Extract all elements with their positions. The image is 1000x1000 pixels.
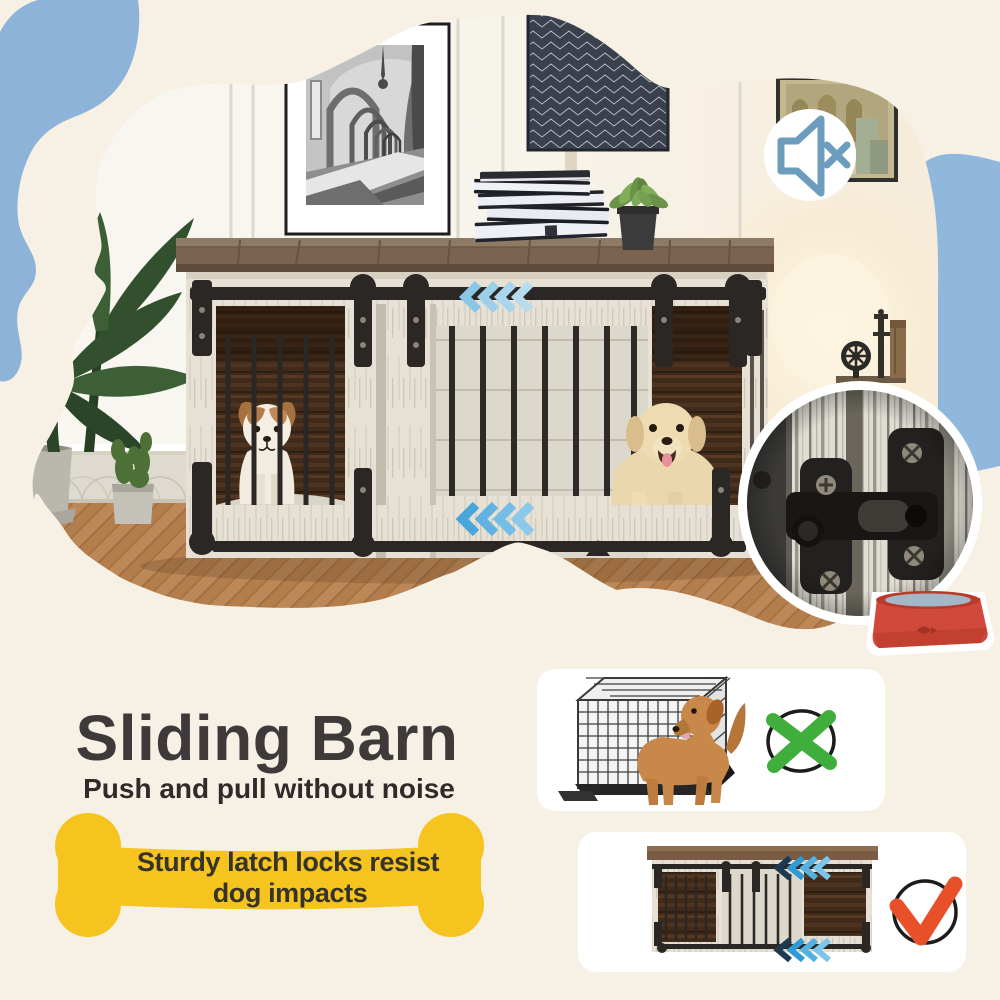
- svg-text:dog impacts: dog impacts: [213, 878, 368, 908]
- svg-text:Sturdy latch locks resist: Sturdy latch locks resist: [137, 847, 440, 877]
- svg-text:Push and pull without noise: Push and pull without noise: [83, 773, 455, 804]
- svg-text:Sliding Barn: Sliding Barn: [76, 702, 459, 774]
